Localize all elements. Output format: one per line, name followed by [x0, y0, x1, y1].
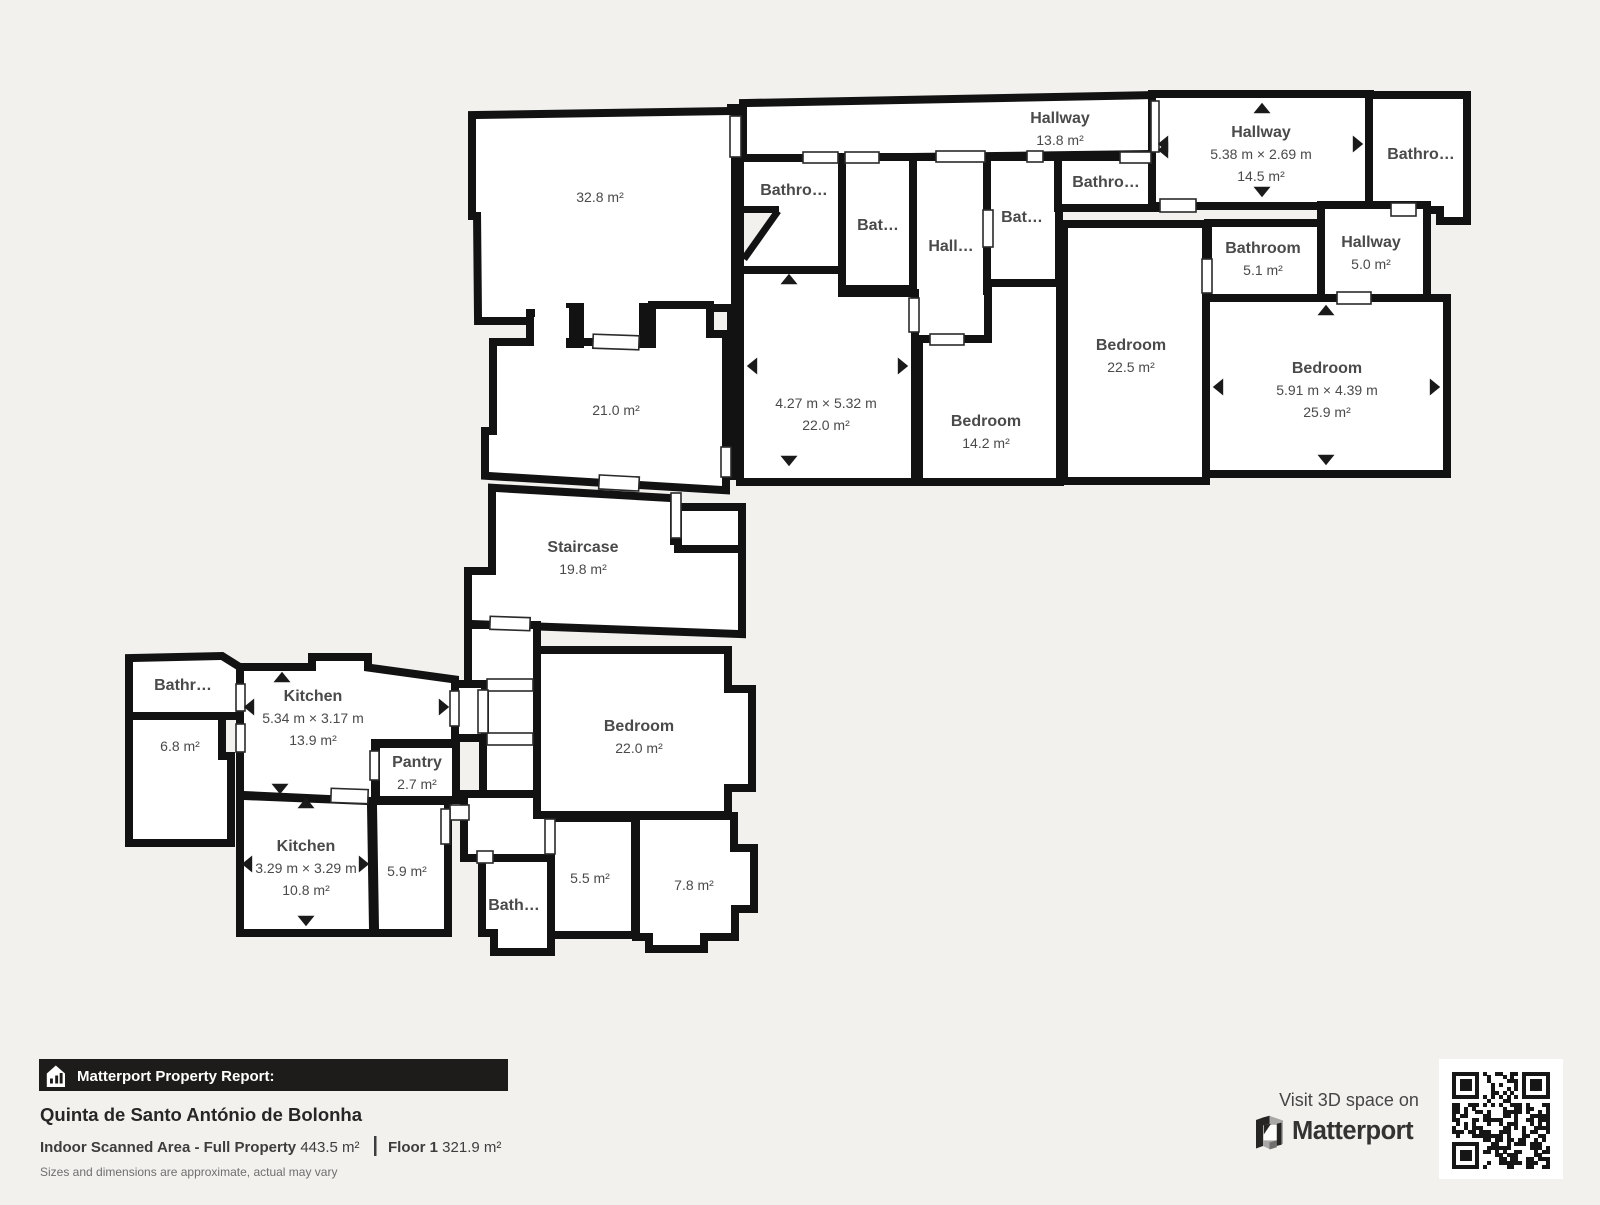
svg-text:Hall…: Hall… [928, 238, 973, 255]
svg-text:25.9 m²: 25.9 m² [1303, 404, 1351, 420]
svg-text:4.27 m × 5.32 m: 4.27 m × 5.32 m [775, 395, 877, 411]
svg-text:Quinta de Santo António de Bol: Quinta de Santo António de Bolonha [40, 1104, 363, 1125]
svg-text:Visit 3D space on: Visit 3D space on [1279, 1090, 1419, 1110]
svg-text:Bath…: Bath… [488, 897, 540, 914]
svg-text:3.29 m × 3.29 m: 3.29 m × 3.29 m [255, 860, 357, 876]
svg-text:5.5 m²: 5.5 m² [570, 870, 610, 886]
svg-text:14.5 m²: 14.5 m² [1237, 168, 1285, 184]
svg-text:Bathro…: Bathro… [1072, 174, 1140, 191]
svg-text:Kitchen: Kitchen [284, 688, 343, 705]
svg-text:Hallway: Hallway [1030, 110, 1090, 127]
svg-text:Bedroom: Bedroom [604, 718, 674, 735]
svg-text:5.9 m²: 5.9 m² [387, 863, 427, 879]
svg-text:Bedroom: Bedroom [1292, 360, 1362, 377]
svg-text:19.8 m²: 19.8 m² [559, 561, 607, 577]
svg-text:13.8 m²: 13.8 m² [1036, 132, 1084, 148]
svg-text:Kitchen: Kitchen [277, 838, 336, 855]
svg-text:Pantry: Pantry [392, 754, 442, 771]
svg-text:Bathroom: Bathroom [1225, 240, 1301, 257]
svg-text:Indoor Scanned Area - Full Pro: Indoor Scanned Area - Full Property 443.… [40, 1139, 360, 1156]
svg-text:5.38 m × 2.69 m: 5.38 m × 2.69 m [1210, 146, 1312, 162]
svg-text:Bathro…: Bathro… [760, 182, 828, 199]
svg-text:Hallway: Hallway [1231, 124, 1291, 141]
svg-text:7.8 m²: 7.8 m² [674, 877, 714, 893]
svg-text:5.34 m × 3.17 m: 5.34 m × 3.17 m [262, 710, 364, 726]
svg-text:Bat…: Bat… [857, 217, 899, 234]
svg-text:Bedroom: Bedroom [951, 413, 1021, 430]
svg-text:21.0 m²: 21.0 m² [592, 402, 640, 418]
svg-text:22.5 m²: 22.5 m² [1107, 359, 1155, 375]
svg-text:Matterport Property Report:: Matterport Property Report: [77, 1068, 275, 1085]
svg-text:6.8 m²: 6.8 m² [160, 738, 200, 754]
svg-text:32.8 m²: 32.8 m² [576, 189, 624, 205]
svg-text:Bedroom: Bedroom [1096, 337, 1166, 354]
svg-text:22.0 m²: 22.0 m² [615, 740, 663, 756]
svg-text:13.9 m²: 13.9 m² [289, 732, 337, 748]
svg-text:Bat…: Bat… [1001, 209, 1043, 226]
svg-text:Matterport: Matterport [1292, 1117, 1414, 1145]
svg-text:2.7 m²: 2.7 m² [397, 776, 437, 792]
svg-text:Staircase: Staircase [547, 539, 618, 556]
svg-text:Hallway: Hallway [1341, 234, 1401, 251]
svg-text:14.2 m²: 14.2 m² [962, 435, 1010, 451]
svg-text:5.0 m²: 5.0 m² [1351, 256, 1391, 272]
svg-text:5.1 m²: 5.1 m² [1243, 262, 1283, 278]
svg-text:Bathr…: Bathr… [154, 677, 212, 694]
svg-text:Bathro…: Bathro… [1387, 146, 1455, 163]
svg-text:Sizes and dimensions are appro: Sizes and dimensions are approximate, ac… [40, 1165, 337, 1179]
svg-text:22.0 m²: 22.0 m² [802, 417, 850, 433]
svg-text:10.8 m²: 10.8 m² [282, 882, 330, 898]
svg-text:5.91 m × 4.39 m: 5.91 m × 4.39 m [1276, 382, 1378, 398]
svg-text:Floor 1 321.9 m²: Floor 1 321.9 m² [388, 1139, 501, 1156]
